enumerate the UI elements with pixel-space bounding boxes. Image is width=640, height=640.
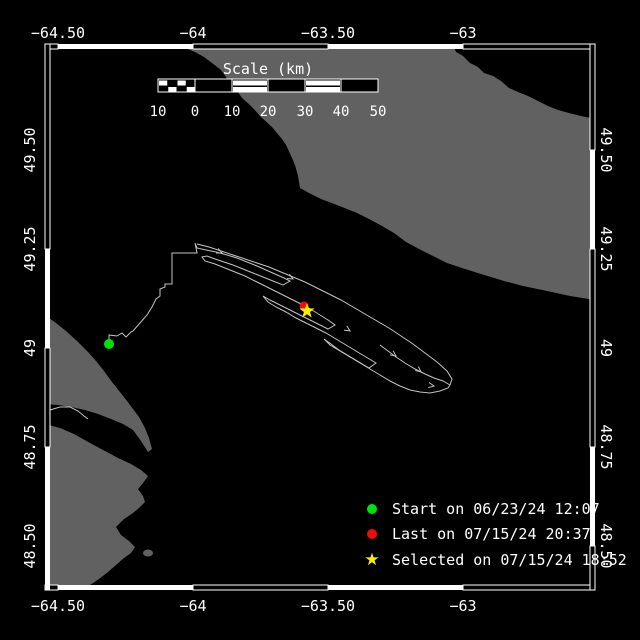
legend-star-icon: ★ [364,555,379,565]
track-direction-arrow [344,326,350,331]
frame-right-segment [590,150,595,249]
axis-label-longitude-bottom: −64 [179,597,206,615]
frame-left-segment [45,44,50,249]
track-direction-arrow [428,383,434,388]
legend-dot-icon [363,529,381,539]
axis-label-longitude-top: −64 [179,24,206,42]
axis-label-latitude-left: 49.25 [21,226,39,271]
frame-left-segment [45,447,50,590]
axis-label-longitude-top: −63 [449,24,476,42]
axis-label-longitude-top: −64.50 [31,24,85,42]
legend-dot-icon [367,529,377,539]
frame-left-segment [45,348,50,447]
track-path-outer[interactable] [197,244,452,385]
scalebar-distance-label: 50 [370,104,387,120]
axis-label-longitude-top: −63.50 [301,24,355,42]
scalebar-distance-label: 0 [191,104,199,120]
axis-label-latitude-left: 49.50 [21,127,39,172]
frame-right-segment [590,447,595,546]
scalebar-light-segment [306,81,340,86]
axis-label-latitude-right: 48.75 [597,424,615,469]
scalebar-distance-label: 30 [297,104,314,120]
frame-bottom-segment [463,585,595,590]
frame-left-segment [45,249,50,348]
axis-label-longitude-bottom: −64.50 [31,597,85,615]
frame-top-segment [58,44,193,49]
legend-row: Last on 07/15/24 20:37 [363,524,591,544]
frame-right-segment [590,249,595,447]
scalebar-light-segment [233,87,267,92]
scalebar-distance-label: 10 [224,104,241,120]
map-canvas[interactable] [0,0,640,640]
legend-label: Start on 06/23/24 12:07 [392,500,600,518]
track-path[interactable] [109,243,450,393]
scalebar-checker-cell [187,87,195,92]
tracking-map-view: Scale (km) −64.50−64−63.50−63−64.50−64−6… [0,0,640,640]
axis-label-latitude-right: 49.25 [597,226,615,271]
axis-label-latitude-left: 48.50 [21,523,39,568]
frame-bottom-segment [58,585,193,590]
axis-label-latitude-left: 48.75 [21,424,39,469]
axis-label-longitude-bottom: −63 [449,597,476,615]
legend-dot-icon [363,504,381,514]
frame-right-segment [590,44,595,150]
axis-label-latitude-right: 49.50 [597,127,615,172]
legend-dot-icon [367,504,377,514]
legend-label: Selected on 07/15/24 18:52 [392,551,627,569]
frame-top-segment [328,44,463,49]
legend-row: ★Selected on 07/15/24 18:52 [363,550,627,570]
frame-bottom-segment [193,585,328,590]
scalebar-distance-label: 20 [260,104,277,120]
frame-top-segment [193,44,328,49]
axis-label-latitude-left: 49 [21,339,39,357]
scalebar-checker-cell [168,87,176,92]
scalebar-checker-cell [178,81,186,86]
islet [143,550,153,557]
scalebar-distance-label: 10 [150,104,167,120]
scalebar-distance-label: 40 [333,104,350,120]
axis-label-latitude-right: 49 [597,339,615,357]
frame-bottom-segment [328,585,463,590]
scalebar-checker-cell [159,81,167,86]
scalebar-title: Scale (km) [223,60,313,78]
scalebar-light-segment [233,81,267,86]
gaspe-south-shore [45,424,148,590]
start-position-marker[interactable] [104,339,114,349]
scalebar-light-segment [306,87,340,92]
legend-label: Last on 07/15/24 20:37 [392,525,591,543]
frame-top-segment [463,44,595,49]
axis-label-longitude-bottom: −63.50 [301,597,355,615]
legend-star-icon: ★ [363,555,381,565]
legend-row: Start on 06/23/24 12:07 [363,499,600,519]
